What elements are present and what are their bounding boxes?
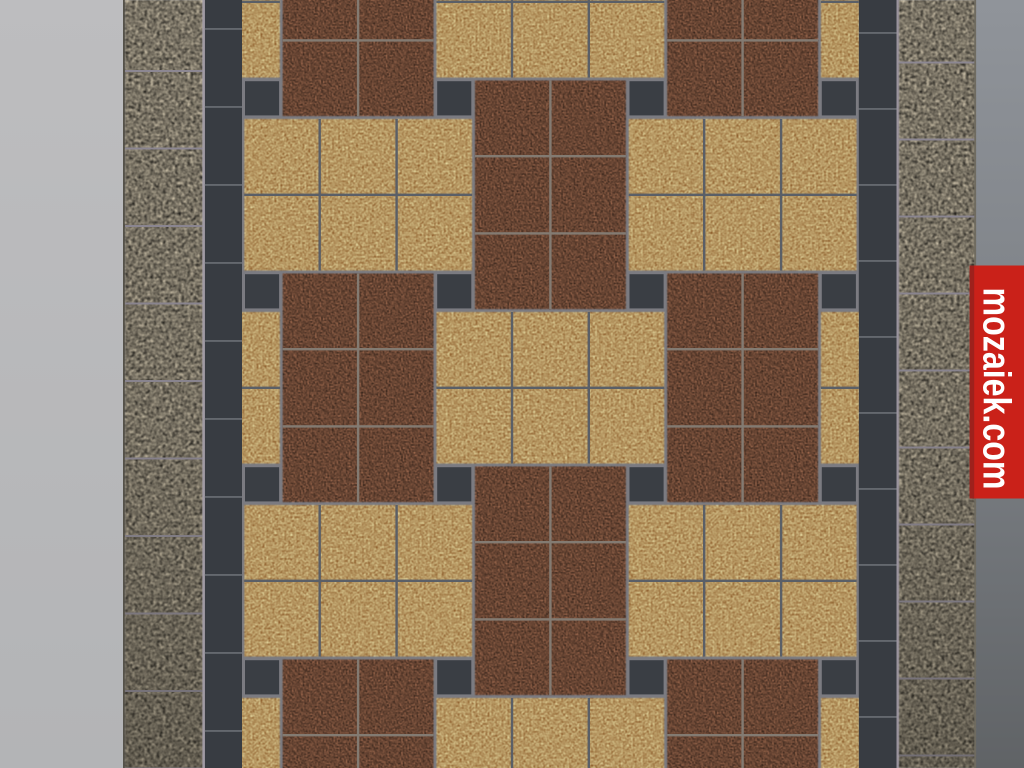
svg-text:mozaiek.com: mozaiek.com [975,288,1018,490]
